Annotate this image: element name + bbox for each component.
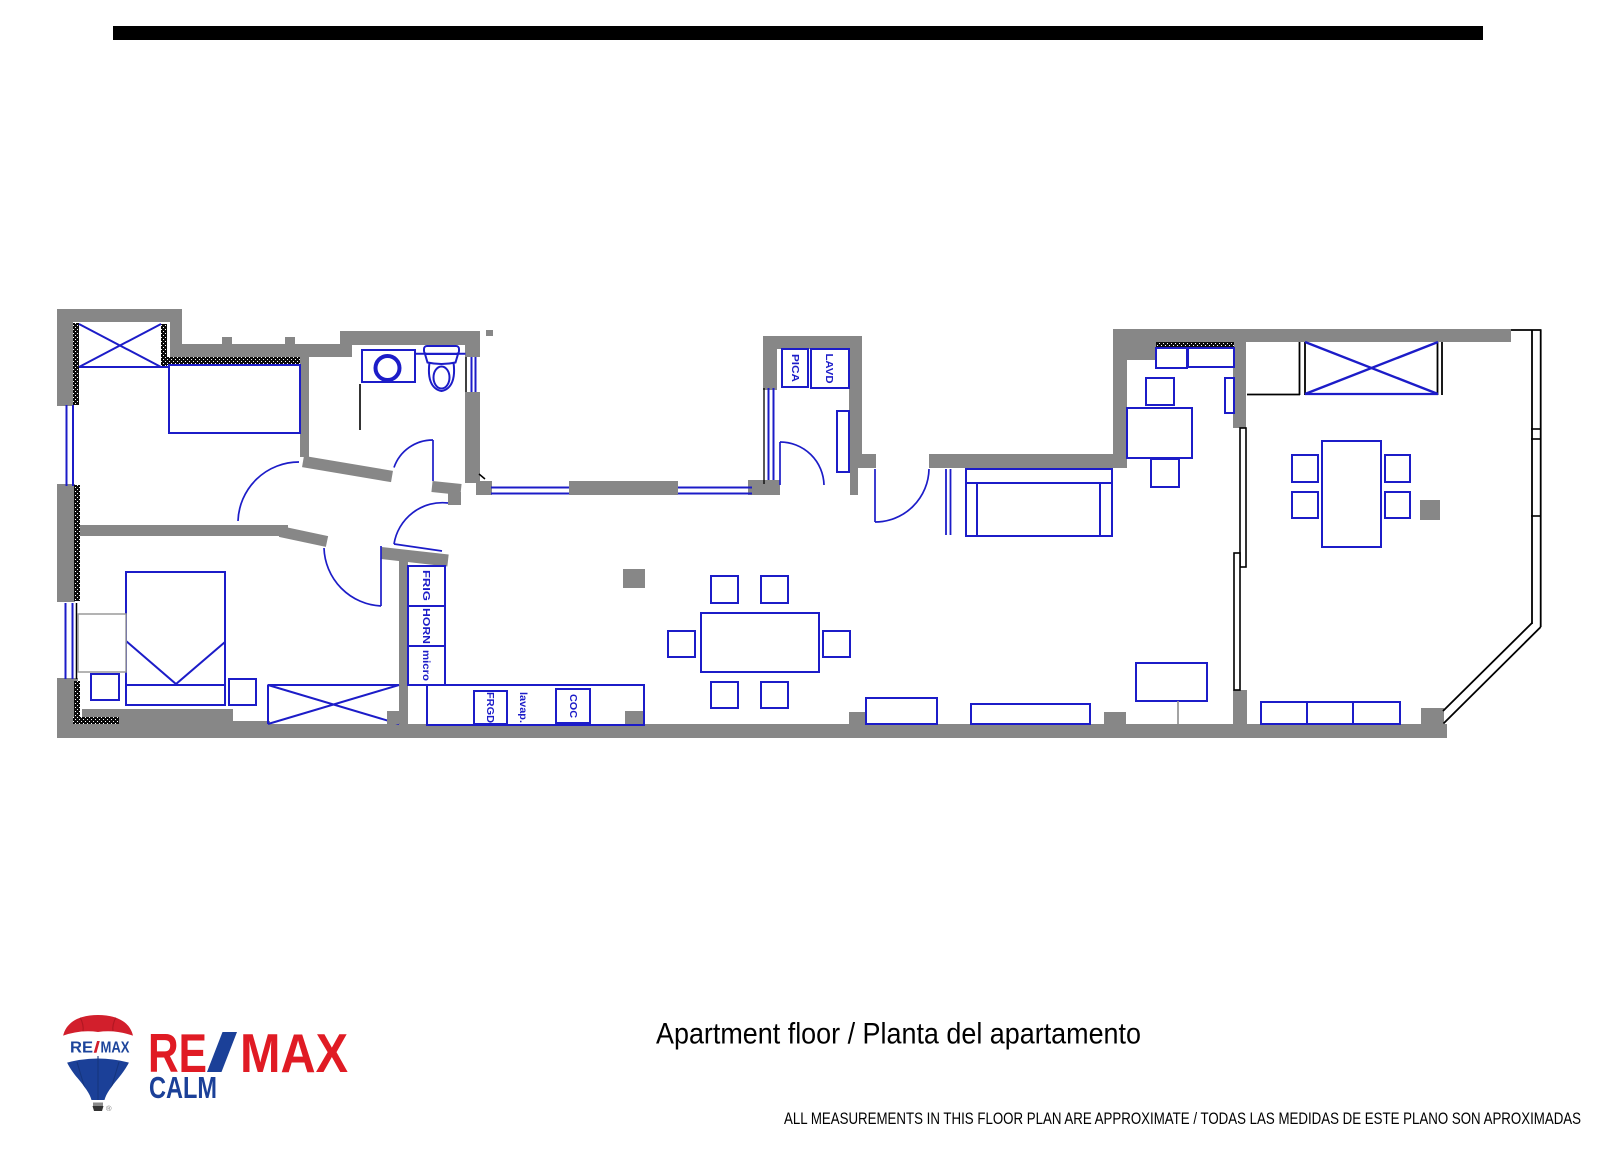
- svg-text:COC: COC: [567, 694, 578, 718]
- svg-text:FRIG: FRIG: [420, 570, 431, 601]
- svg-text:HORN: HORN: [420, 608, 431, 644]
- svg-text:MAX: MAX: [240, 1022, 348, 1084]
- svg-text:MAX: MAX: [101, 1040, 131, 1057]
- svg-text:ALL MEASUREMENTS IN THIS FLOOR: ALL MEASUREMENTS IN THIS FLOOR PLAN ARE …: [784, 1109, 1581, 1128]
- svg-text:Apartment floor / Planta del a: Apartment floor / Planta del apartamento: [656, 1018, 1141, 1051]
- svg-text:®: ®: [106, 1104, 112, 1113]
- svg-text:lavap.: lavap.: [517, 692, 528, 723]
- svg-text:micro: micro: [420, 650, 431, 681]
- svg-text:CALM: CALM: [149, 1071, 217, 1105]
- svg-text:LAVD: LAVD: [823, 354, 834, 384]
- svg-text:FRGD: FRGD: [484, 692, 495, 723]
- svg-text:RE: RE: [70, 1040, 93, 1057]
- svg-text:PICA: PICA: [789, 354, 800, 382]
